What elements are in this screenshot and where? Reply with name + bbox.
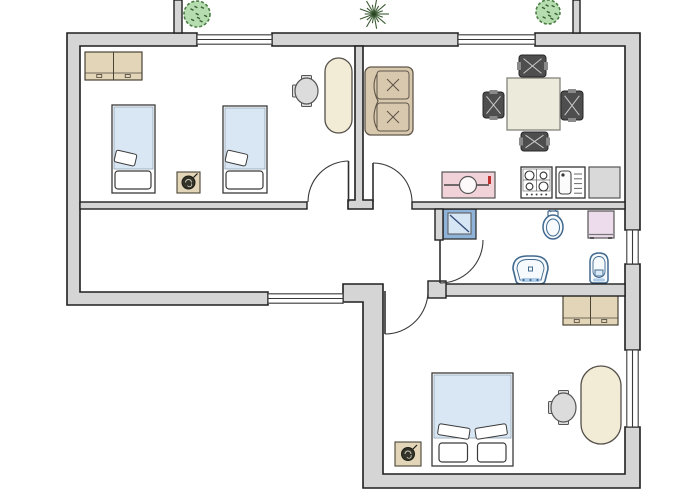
bathroom-shower xyxy=(443,209,476,239)
interior-wall-bathroom-left-stub xyxy=(435,209,443,240)
outer-wall-right-middle xyxy=(625,264,640,350)
balcony-divider-left xyxy=(174,0,182,33)
interior-wall-bedroom2-door-jamb xyxy=(428,281,446,298)
dining-chair-left xyxy=(483,90,504,120)
bathroom-cabinet xyxy=(588,211,614,239)
window-living-balcony xyxy=(458,34,535,45)
bedroom2-desk xyxy=(581,366,621,444)
window-corridor-bottom xyxy=(268,293,343,304)
bedroom2-double-bed xyxy=(432,373,513,466)
window-bedroom1-balcony xyxy=(197,34,272,45)
bathroom-bidet xyxy=(590,253,608,283)
kitchen-fridge-counter xyxy=(589,167,620,198)
floor-plan xyxy=(0,0,700,500)
dining-chair-right xyxy=(561,89,583,122)
bedroom1-bed-left xyxy=(112,105,155,193)
balcony-bush-right xyxy=(536,0,560,24)
balcony-divider-right xyxy=(573,0,580,33)
bedroom2-plant-table xyxy=(395,442,421,466)
dining-table xyxy=(507,78,560,130)
bedroom1-wardrobe xyxy=(85,52,142,80)
bedroom1-desk xyxy=(325,58,352,133)
window-bathroom-right xyxy=(626,230,639,264)
dining-chair-bottom xyxy=(519,132,550,151)
window-bedroom2-right xyxy=(626,350,639,427)
kitchen-stove xyxy=(521,167,552,198)
kitchen-sink xyxy=(556,167,585,198)
dining-chair-top xyxy=(517,55,548,77)
bedroom2-wardrobe xyxy=(563,294,618,325)
balcony-bush-left xyxy=(184,1,210,27)
interior-wall-bathroom-bottom xyxy=(444,284,625,296)
kitchen-counter-sink xyxy=(442,172,495,198)
interior-wall-kitchen-bathroom xyxy=(412,202,625,209)
bedroom1-bed-right xyxy=(223,106,267,193)
outer-wall-top-middle xyxy=(272,33,458,46)
floor-plan-svg xyxy=(0,0,700,500)
bathroom-washbasin xyxy=(513,256,548,284)
bedroom1-nightstand-plant xyxy=(177,172,200,193)
interior-wall-corridor-top xyxy=(80,202,307,209)
livingroom-sofa xyxy=(365,67,413,135)
